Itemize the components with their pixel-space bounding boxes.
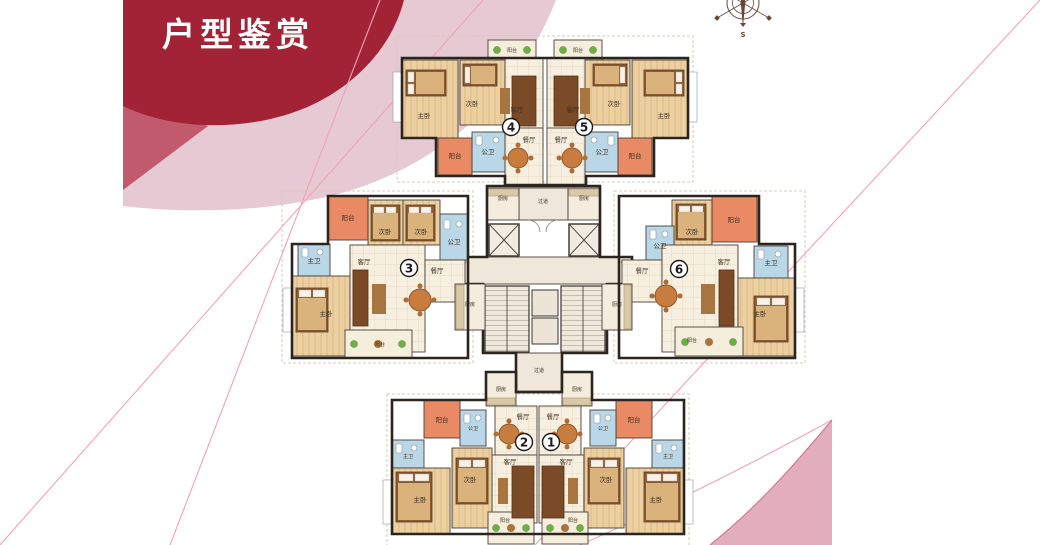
unit-number: 1 [547,436,555,450]
room-label-dining: 餐厅 [636,266,650,275]
unit-2-badge: 2 [516,434,533,451]
room-label-corridor: 过道 [538,198,548,205]
unit-3-plan: 阳台 次卧 次卧 公卫 主卫 主卧 客厅 餐厅 厨房 阳台 3 [283,196,485,358]
room-label-second-bedroom: 次卧 [415,227,429,236]
room-label-master-bathroom: 主卫 [765,258,779,267]
room-label-balcony: 阳台 [375,341,385,348]
unit-number: 6 [675,263,683,277]
room-label-dining: 餐厅 [547,412,561,421]
room-label-kitchen: 厨房 [579,195,589,202]
unit-number: 4 [507,121,515,135]
room-label-kitchen: 厨房 [496,386,506,393]
compass-icon: S [714,0,772,39]
unit-3-badge: 3 [401,260,418,277]
room-label-dining: 餐厅 [431,266,445,275]
bed-icon [463,64,497,86]
stairs-icon [561,286,605,352]
room-label-balcony: 阳台 [629,151,642,160]
room-label-master-bedroom: 主卧 [754,309,768,318]
utility-shaft [532,290,558,316]
unit-1-plan: 厨房 阳台 公卫 餐厅 客厅 次卧 主卫 主卧 阳台 1 [539,372,693,544]
room-label-bathroom: 公卫 [482,148,496,156]
room-label-kitchen: 厨房 [572,386,582,393]
unit-1-badge: 1 [543,434,560,451]
unit-number: 3 [405,262,413,276]
room-label-living: 客厅 [358,257,372,266]
room-label-balcony: 阳台 [687,337,697,344]
room-label-master-bathroom: 主卫 [403,453,413,460]
unit-5-badge: 5 [576,119,593,136]
room-label-master-bedroom: 主卧 [650,495,664,504]
unit-2-plan: 厨房 阳台 公卫 餐厅 客厅 次卧 主卫 主卧 阳台 2 [383,372,537,544]
page-background: 户型鉴赏 [0,0,1050,545]
elevator-icon [489,224,519,256]
room-label-second-bedroom: 次卧 [686,227,700,236]
room-label-second-bedroom: 次卧 [466,99,480,108]
room-label-balcony: 阳台 [573,47,583,54]
room-label-balcony: 阳台 [568,517,578,524]
room-label-living: 客厅 [511,105,525,114]
room-label-living: 客厅 [718,257,732,266]
room-label-balcony: 阳台 [436,415,449,424]
room-label-living: 客厅 [567,105,581,114]
stairs-icon [485,286,529,352]
unit-number: 2 [520,436,528,450]
room-label-balcony: 阳台 [500,517,510,524]
room-label-dining: 餐厅 [555,135,569,144]
unit-6-plan: 阳台 次卧 公卫 餐厅 客厅 主卫 主卧 厨房 阳台 6 [602,196,804,356]
unit-4-badge: 4 [503,119,520,136]
room-label-kitchen: 厨房 [465,301,475,308]
core-corridor [455,257,632,284]
room-label-bathroom: 公卫 [598,426,608,432]
bed-icon [593,64,627,86]
room-label-master-bathroom: 主卫 [663,453,673,460]
utility-shaft [532,318,558,344]
unit-number: 5 [580,121,588,135]
room-label-balcony: 阳台 [449,151,462,160]
elevator-icon [569,224,599,256]
room-label-kitchen: 厨房 [498,195,508,202]
unit-5-plan: 主卧 次卧 客厅 餐厅 公卫 阳台 阳台 5 [547,40,697,185]
room-label-master-bedroom: 主卧 [320,309,334,318]
room-label-second-bedroom: 次卧 [600,475,614,484]
unit-6-badge: 6 [671,261,688,278]
bed-icon [406,70,446,96]
room-label-corridor: 过道 [534,367,544,374]
room-label-dining: 餐厅 [517,412,531,421]
corner-wedge-shape [710,420,832,545]
room-label-balcony: 阳台 [628,415,641,424]
room-label-master-bathroom: 主卫 [308,256,322,265]
room-label-kitchen: 厨房 [612,301,622,308]
room-label-bathroom: 公卫 [468,426,478,432]
room-label-living: 客厅 [504,457,518,466]
bed-icon [754,296,788,342]
room-label-second-bedroom: 次卧 [379,227,393,236]
room-label-balcony: 阳台 [728,215,741,224]
room-label-second-bedroom: 次卧 [608,99,622,108]
room-label-bathroom: 公卫 [596,148,610,156]
bed-icon [644,70,684,96]
room-label-dining: 餐厅 [523,135,537,144]
room-label-bathroom: 公卫 [448,238,462,246]
poster-artwork: S [0,0,1050,545]
room-label-balcony: 阳台 [507,47,517,54]
room-label-master-bedroom: 主卧 [658,111,672,120]
compass-south-label: S [740,31,745,39]
page-title: 户型鉴赏 [162,8,314,56]
room-label-master-bedroom: 主卧 [414,495,428,504]
room-label-living: 客厅 [560,457,574,466]
room-label-balcony: 阳台 [342,213,355,222]
room-label-bathroom: 公卫 [654,242,668,250]
room-label-master-bedroom: 主卧 [418,111,432,120]
room-label-second-bedroom: 次卧 [464,475,478,484]
unit-4-plan: 主卧 次卧 客厅 餐厅 公卫 阳台 阳台 4 [393,40,543,185]
